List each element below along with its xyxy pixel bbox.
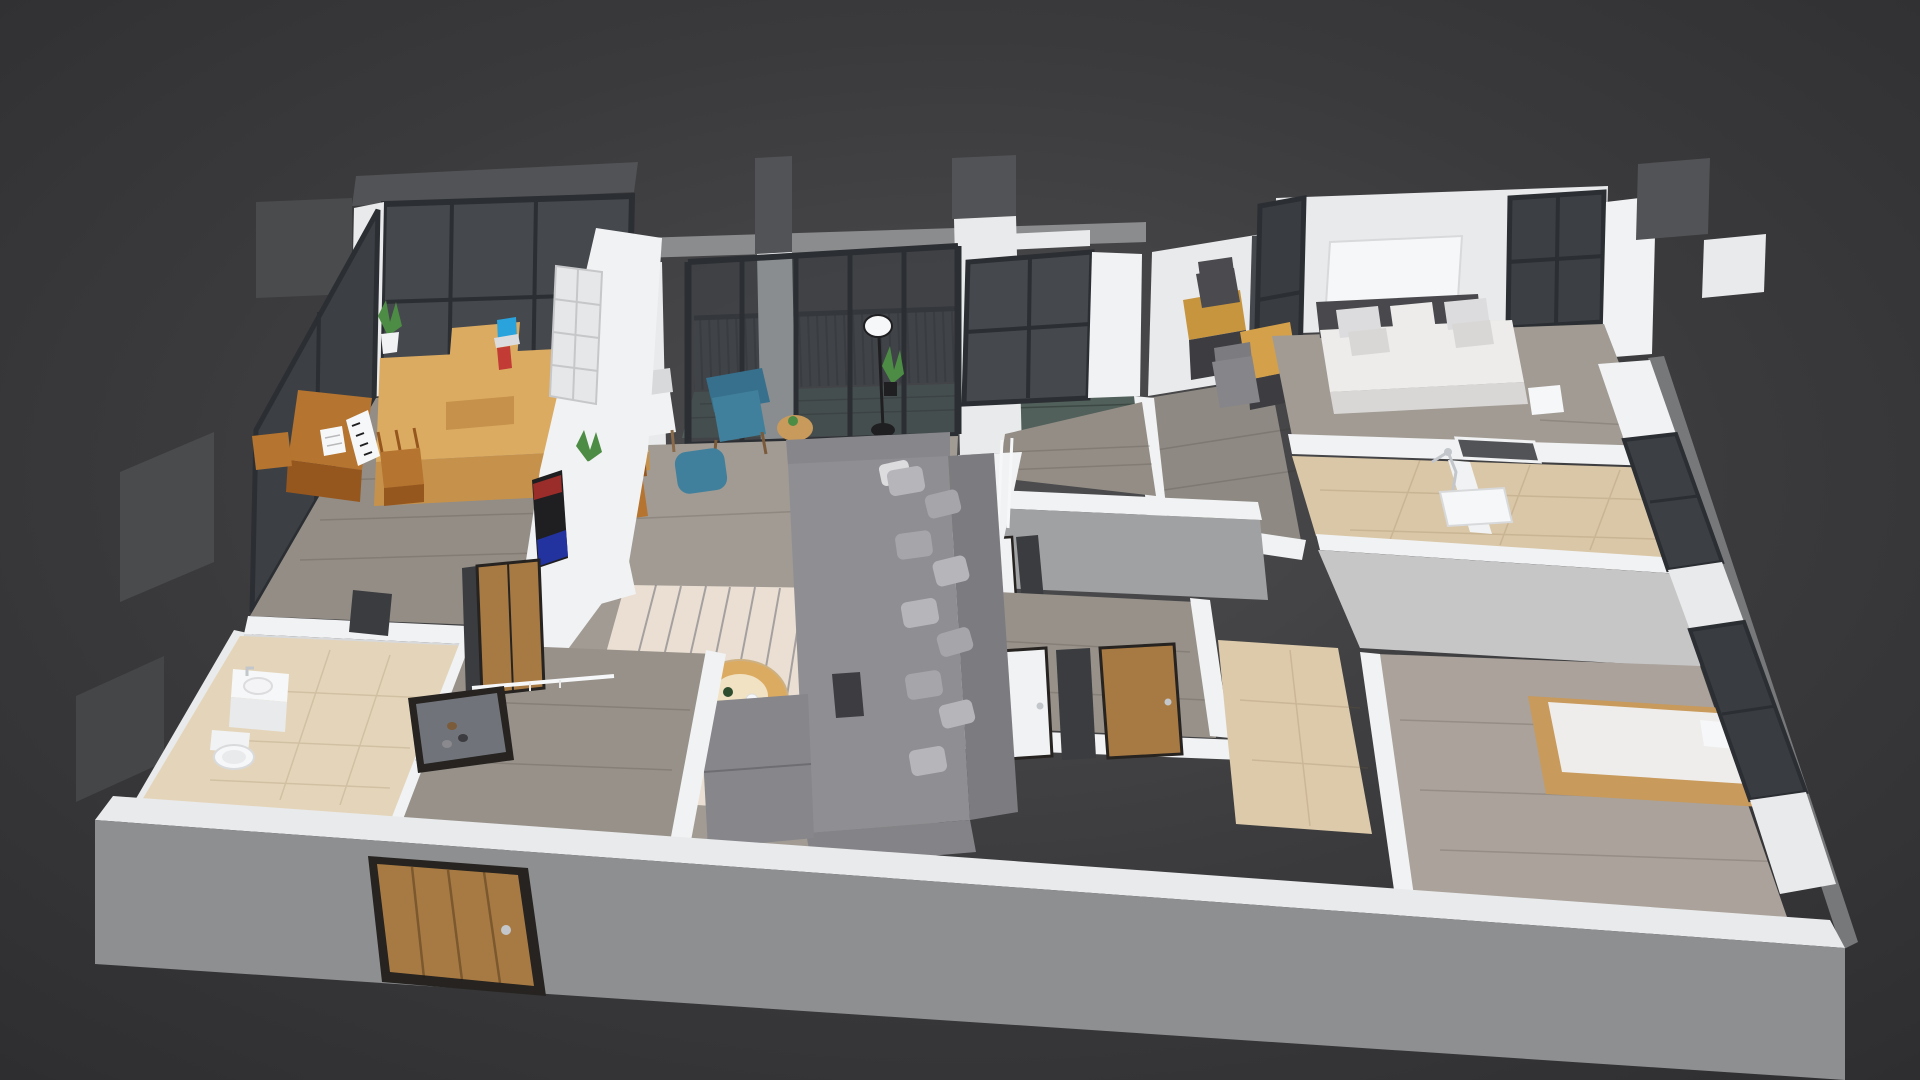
window-mullion — [1556, 196, 1558, 326]
red-book — [497, 346, 512, 370]
shower-tray — [1440, 488, 1512, 526]
sink-basin — [244, 678, 272, 694]
kitchen-wall-pier — [1088, 252, 1142, 398]
balcony-pier-cap — [952, 155, 1016, 219]
side-stool — [252, 432, 292, 470]
shoe — [447, 722, 457, 730]
dark-side-table — [832, 672, 864, 718]
nightstand — [1528, 385, 1564, 415]
pillow-front — [1452, 320, 1494, 348]
art-panel — [1326, 236, 1462, 304]
parapet-slab-white — [1702, 234, 1766, 298]
sink-cabinet — [229, 697, 287, 732]
plant-pot-dark — [884, 382, 897, 396]
shower-head — [1444, 448, 1452, 456]
floor-lamp-shade — [864, 315, 892, 337]
shoe — [442, 740, 452, 748]
side-table-plant — [788, 416, 798, 426]
mirror-glass — [416, 693, 506, 764]
bottle — [723, 687, 733, 697]
plant-pot — [381, 332, 399, 354]
floorplan-3d-render — [0, 0, 1920, 1080]
balcony-pier-cap — [755, 156, 792, 254]
armchair-seat — [712, 390, 766, 442]
console-plant-pot — [582, 460, 600, 480]
toilet-seat — [222, 750, 246, 764]
parapet-slab-dark — [1636, 158, 1710, 240]
entry-door-handle — [501, 925, 511, 935]
door-handle — [1037, 703, 1044, 710]
door-handle — [1165, 699, 1172, 706]
dark-opening — [1056, 648, 1096, 760]
shoe — [458, 734, 468, 742]
task-chair-near-seat — [1212, 356, 1260, 408]
task-chair-far-seat — [1196, 268, 1240, 308]
render-viewport — [0, 0, 1920, 1080]
bathroom-doorway — [349, 590, 392, 636]
throw-pillow — [894, 530, 933, 561]
throw-pillow — [904, 669, 944, 700]
piano-stool-seat — [380, 448, 424, 488]
teal-ottoman — [673, 447, 728, 496]
pillow-front — [1348, 328, 1390, 356]
sheet-music — [320, 426, 346, 456]
pass-through-niche — [1456, 438, 1540, 462]
study-desk-face — [446, 396, 514, 430]
pillow-front — [1400, 324, 1442, 352]
